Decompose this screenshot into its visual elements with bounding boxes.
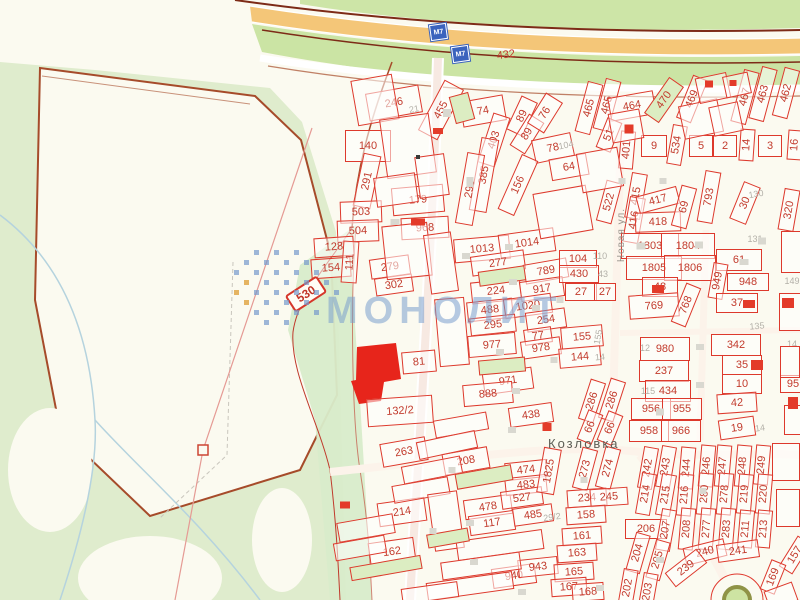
building-footprint [512, 388, 520, 394]
building-footprint [518, 589, 526, 595]
parcel-14[interactable]: 14 [738, 129, 755, 162]
parcel-3[interactable]: 3 [758, 135, 782, 157]
parcel-2[interactable]: 2 [713, 135, 737, 157]
building-footprint [696, 382, 704, 388]
parcel-149[interactable]: 149 [780, 275, 800, 287]
parcel-158[interactable]: 158 [565, 505, 606, 526]
parcel-132-2[interactable]: 132/2 [366, 395, 434, 428]
parcel[interactable] [434, 297, 470, 367]
building-footprint [619, 178, 626, 184]
building-footprint [656, 557, 664, 563]
building-footprint [467, 177, 474, 187]
parcel-115[interactable]: 115 [638, 385, 658, 397]
building-footprint [466, 520, 474, 526]
building-footprint [462, 253, 470, 259]
parcel[interactable] [373, 172, 419, 208]
building-footprint [696, 344, 704, 350]
parcel-237[interactable]: 237 [639, 360, 689, 382]
parcel-977[interactable]: 977 [467, 332, 517, 358]
parcel-5[interactable]: 5 [689, 135, 713, 157]
parcel-888[interactable]: 888 [462, 381, 514, 407]
parcel[interactable] [414, 153, 450, 199]
registered-building-footprint [411, 219, 425, 226]
parcel[interactable] [708, 101, 744, 137]
building-footprint [660, 178, 667, 184]
parcel-342[interactable]: 342 [711, 334, 761, 356]
registered-building-footprint [625, 125, 634, 134]
building-footprint [551, 357, 558, 363]
parcel-135[interactable]: 135 [745, 319, 770, 333]
building-footprint [656, 409, 664, 416]
parcel-27[interactable]: 27 [565, 283, 597, 301]
parcel-43[interactable]: 43 [595, 268, 611, 280]
registered-building-footprint [743, 300, 755, 308]
parcel-111[interactable]: 111 [341, 240, 360, 283]
parcel-42[interactable]: 42 [716, 392, 757, 415]
registered-building-footprint [340, 502, 350, 509]
building-footprint [470, 559, 478, 565]
parcel[interactable] [780, 346, 800, 378]
building-footprint [496, 349, 504, 355]
parcel[interactable] [576, 147, 624, 194]
parcel-163[interactable]: 163 [556, 543, 597, 564]
building-footprint [509, 279, 517, 285]
street-name-label: Новая ул. [616, 208, 627, 262]
building-footprint [449, 467, 456, 473]
registered-building-footprint [782, 298, 794, 308]
parcel-9[interactable]: 9 [641, 135, 667, 157]
parcel-16[interactable]: 16 [786, 130, 800, 161]
registered-building-footprint [543, 423, 552, 431]
route-m7-badge: М7 [429, 23, 448, 41]
building-footprint [581, 477, 588, 483]
parcel-948[interactable]: 948 [727, 273, 769, 291]
building-footprint [532, 305, 540, 311]
parcel[interactable] [781, 231, 800, 273]
building-footprint [596, 585, 604, 591]
parcel-81[interactable]: 81 [401, 350, 437, 375]
building-footprint [505, 244, 513, 250]
building-footprint [758, 238, 766, 245]
registered-building-footprint [730, 80, 737, 86]
building-footprint [637, 243, 646, 250]
registered-building-footprint [751, 360, 763, 370]
route-m7-badge: М7 [451, 45, 470, 63]
building-footprint [391, 219, 400, 225]
building-footprint [430, 528, 437, 534]
parcel-14[interactable]: 14 [750, 421, 769, 435]
parcel[interactable] [776, 489, 800, 527]
parcel-12[interactable]: 12 [637, 342, 653, 354]
parcel[interactable] [772, 443, 800, 481]
registered-building-footprint [788, 397, 798, 409]
parcel-955[interactable]: 955 [662, 398, 702, 420]
building-footprint [695, 242, 703, 249]
building-footprint [700, 488, 707, 494]
parcel-430[interactable]: 430 [559, 265, 599, 283]
settlement-label: Козловка [548, 436, 620, 451]
building-footprint [557, 297, 564, 303]
parcel-27[interactable]: 27 [594, 283, 616, 301]
parcel-245[interactable]: 245 [589, 487, 628, 508]
survey-point-dot [416, 155, 420, 159]
cadastral-map-canvas[interactable]: МОНОЛИТ Козловка Новая ул. 530 М7 М7 246… [0, 0, 800, 600]
building-footprint [508, 427, 516, 433]
parcel-966[interactable]: 966 [661, 420, 701, 442]
registered-building-footprint [705, 81, 713, 88]
parcel[interactable] [784, 405, 800, 435]
building-footprint [740, 259, 749, 265]
parcel-14[interactable]: 14 [591, 350, 610, 364]
parcel-110[interactable]: 110 [590, 250, 610, 262]
selected-parcel-highlight [351, 343, 401, 404]
registered-building-footprint [433, 128, 443, 134]
registered-building-footprint [652, 285, 664, 293]
building-footprint [443, 109, 451, 117]
